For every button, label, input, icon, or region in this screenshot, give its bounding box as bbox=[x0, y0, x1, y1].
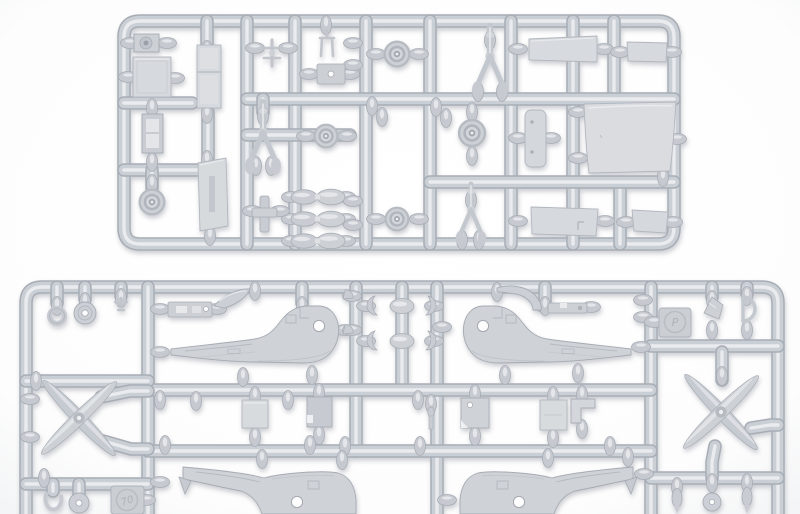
gate-highlight bbox=[205, 153, 209, 162]
gate-highlight bbox=[442, 496, 452, 499]
gate-blob bbox=[438, 495, 457, 506]
cabin-panel-part-4 bbox=[632, 210, 668, 233]
gate-highlight bbox=[473, 429, 477, 438]
gate-highlight bbox=[638, 296, 648, 299]
gate-highlight bbox=[158, 393, 162, 402]
latch-bracket-part bbox=[548, 303, 587, 313]
panel-parallelogram-part bbox=[198, 158, 228, 231]
instrument-plate-part bbox=[134, 34, 159, 52]
gate-highlight bbox=[283, 44, 293, 47]
gate-highlight bbox=[414, 50, 424, 53]
gate-highlight bbox=[162, 39, 172, 42]
gate-highlight bbox=[317, 428, 321, 437]
gate-blob bbox=[151, 477, 170, 488]
gate-highlight bbox=[343, 439, 347, 448]
gate-highlight bbox=[342, 132, 352, 135]
fairing-box-part-4 bbox=[540, 400, 567, 430]
gate-highlight bbox=[250, 44, 260, 47]
gate-highlight bbox=[586, 303, 596, 306]
gate-highlight bbox=[599, 45, 609, 48]
gate-blob bbox=[367, 214, 386, 225]
gate-highlight bbox=[576, 366, 580, 375]
wheel-hub-part bbox=[703, 493, 721, 511]
gate-highlight bbox=[437, 323, 447, 326]
gate-highlight bbox=[253, 430, 257, 439]
gate-highlight bbox=[155, 478, 165, 481]
cabin-panel-part-3 bbox=[531, 207, 598, 236]
gate-highlight bbox=[286, 393, 290, 402]
photo-canvas: 70 bbox=[0, 0, 800, 514]
gate-highlight bbox=[649, 318, 659, 321]
gate-highlight bbox=[310, 368, 314, 377]
gate-blob bbox=[344, 220, 363, 231]
gate-highlight bbox=[546, 451, 550, 460]
gate-highlight bbox=[745, 476, 749, 485]
door-panel-part bbox=[197, 45, 221, 108]
gate-highlight bbox=[317, 386, 321, 395]
wheel-part-3 bbox=[384, 41, 411, 68]
gate-highlight bbox=[370, 99, 374, 108]
gate-highlight bbox=[470, 149, 474, 158]
gate-highlight bbox=[241, 370, 245, 379]
sprue-photo: 70 bbox=[0, 0, 800, 514]
gate-highlight bbox=[304, 70, 314, 73]
gate-highlight bbox=[418, 439, 422, 448]
gate-highlight bbox=[720, 369, 724, 378]
gate-blob bbox=[367, 49, 386, 60]
wheel-part-2 bbox=[314, 124, 339, 149]
gate-highlight bbox=[414, 215, 424, 218]
gate-highlight bbox=[170, 74, 180, 77]
mold-stamp-right-text: P bbox=[672, 316, 679, 329]
gate-blob bbox=[344, 60, 363, 71]
gate-highlight bbox=[638, 313, 648, 316]
gate-highlight bbox=[163, 438, 167, 447]
gate-blob bbox=[596, 216, 615, 227]
gate-highlight bbox=[503, 368, 507, 377]
gate-blob bbox=[611, 47, 630, 58]
fairing-box-part-3 bbox=[461, 398, 489, 428]
gate-blob bbox=[634, 295, 653, 306]
cabin-panel-part-1 bbox=[529, 36, 597, 62]
gate-highlight bbox=[745, 323, 749, 332]
windshield-panel-part bbox=[584, 102, 676, 173]
cabin-panel-part-2 bbox=[627, 42, 667, 62]
gate-blob bbox=[151, 347, 170, 358]
gate-highlight bbox=[573, 154, 583, 157]
gate-blob bbox=[410, 49, 429, 60]
gate-highlight bbox=[473, 387, 477, 396]
gate-highlight bbox=[253, 284, 257, 293]
fairing-box-part-1 bbox=[242, 400, 268, 428]
hub-disc-part-2 bbox=[69, 493, 89, 513]
gate-blob bbox=[509, 216, 528, 227]
gate-highlight bbox=[260, 452, 264, 461]
gate-blob bbox=[635, 469, 654, 480]
gate-highlight bbox=[324, 18, 328, 27]
gate-highlight bbox=[380, 110, 384, 119]
gate-highlight bbox=[470, 105, 474, 114]
gate-highlight bbox=[416, 393, 420, 402]
wheel-part-4 bbox=[385, 207, 410, 232]
gate-highlight bbox=[513, 217, 523, 220]
slotted-bracket-part bbox=[168, 302, 212, 317]
gate-highlight bbox=[513, 134, 523, 137]
gate-highlight bbox=[615, 48, 625, 51]
gate-blob bbox=[344, 38, 363, 49]
wheel-part-1 bbox=[139, 189, 166, 216]
gate-highlight bbox=[25, 433, 35, 436]
gate-highlight bbox=[348, 61, 358, 64]
gate-blob bbox=[158, 38, 177, 49]
gate-highlight bbox=[150, 155, 154, 164]
fairing-box-part-2 bbox=[307, 397, 332, 427]
gate-highlight bbox=[150, 177, 154, 186]
gate-highlight bbox=[546, 134, 556, 137]
window-frame-part bbox=[142, 114, 163, 153]
gate-highlight bbox=[253, 389, 257, 398]
cabin-door-part bbox=[525, 110, 546, 167]
gate-highlight bbox=[25, 395, 35, 398]
gate-highlight bbox=[429, 397, 433, 406]
gate-blob bbox=[509, 44, 528, 55]
mold-stamp-tag-left: 70 bbox=[111, 486, 144, 514]
gate-blob bbox=[569, 153, 588, 164]
bracket-part bbox=[317, 64, 345, 84]
gate-highlight bbox=[348, 197, 358, 200]
wheel-part-5 bbox=[458, 119, 486, 147]
gate-highlight bbox=[155, 348, 165, 351]
gate-blob bbox=[338, 131, 357, 142]
gate-highlight bbox=[580, 388, 584, 397]
gate-highlight bbox=[639, 470, 649, 473]
floor-plate-part bbox=[133, 57, 171, 97]
gate-blob bbox=[151, 304, 170, 315]
gate-highlight bbox=[444, 111, 448, 120]
mold-stamp-tag-right: P bbox=[659, 308, 691, 337]
gate-highlight bbox=[371, 215, 381, 218]
gate-blob bbox=[21, 432, 40, 443]
gate-blob bbox=[21, 394, 40, 405]
gate-blob bbox=[433, 322, 452, 333]
gate-highlight bbox=[308, 438, 312, 447]
gate-highlight bbox=[626, 450, 630, 459]
hub-disc-part-1 bbox=[74, 302, 96, 324]
gate-highlight bbox=[301, 132, 311, 135]
gate-highlight bbox=[155, 305, 165, 308]
gate-highlight bbox=[340, 453, 344, 462]
gate-highlight bbox=[150, 101, 154, 110]
gate-highlight bbox=[636, 343, 646, 346]
gate-highlight bbox=[710, 323, 714, 332]
gate-highlight bbox=[123, 73, 133, 76]
gate-highlight bbox=[42, 471, 46, 480]
gate-blob bbox=[300, 69, 319, 80]
gate-highlight bbox=[551, 389, 555, 398]
gate-highlight bbox=[573, 108, 583, 111]
gate-highlight bbox=[551, 431, 555, 440]
gate-highlight bbox=[348, 221, 358, 224]
gate-highlight bbox=[513, 45, 523, 48]
gate-highlight bbox=[34, 374, 38, 383]
gate-highlight bbox=[348, 39, 358, 42]
gate-highlight bbox=[668, 218, 678, 221]
gate-highlight bbox=[371, 50, 381, 53]
gate-blob bbox=[344, 196, 363, 207]
gate-highlight bbox=[543, 299, 547, 308]
gate-highlight bbox=[675, 480, 679, 489]
gate-highlight bbox=[194, 394, 198, 403]
gate-blob bbox=[297, 131, 316, 142]
gate-highlight bbox=[434, 100, 438, 109]
gate-highlight bbox=[600, 217, 610, 220]
gate-blob bbox=[632, 342, 651, 353]
gate-blob bbox=[410, 214, 429, 225]
gate-highlight bbox=[621, 218, 631, 221]
gate-highlight bbox=[125, 39, 135, 42]
gate-highlight bbox=[710, 476, 714, 485]
gate-highlight bbox=[667, 48, 677, 51]
pin-part bbox=[428, 407, 434, 429]
gate-highlight bbox=[608, 439, 612, 448]
